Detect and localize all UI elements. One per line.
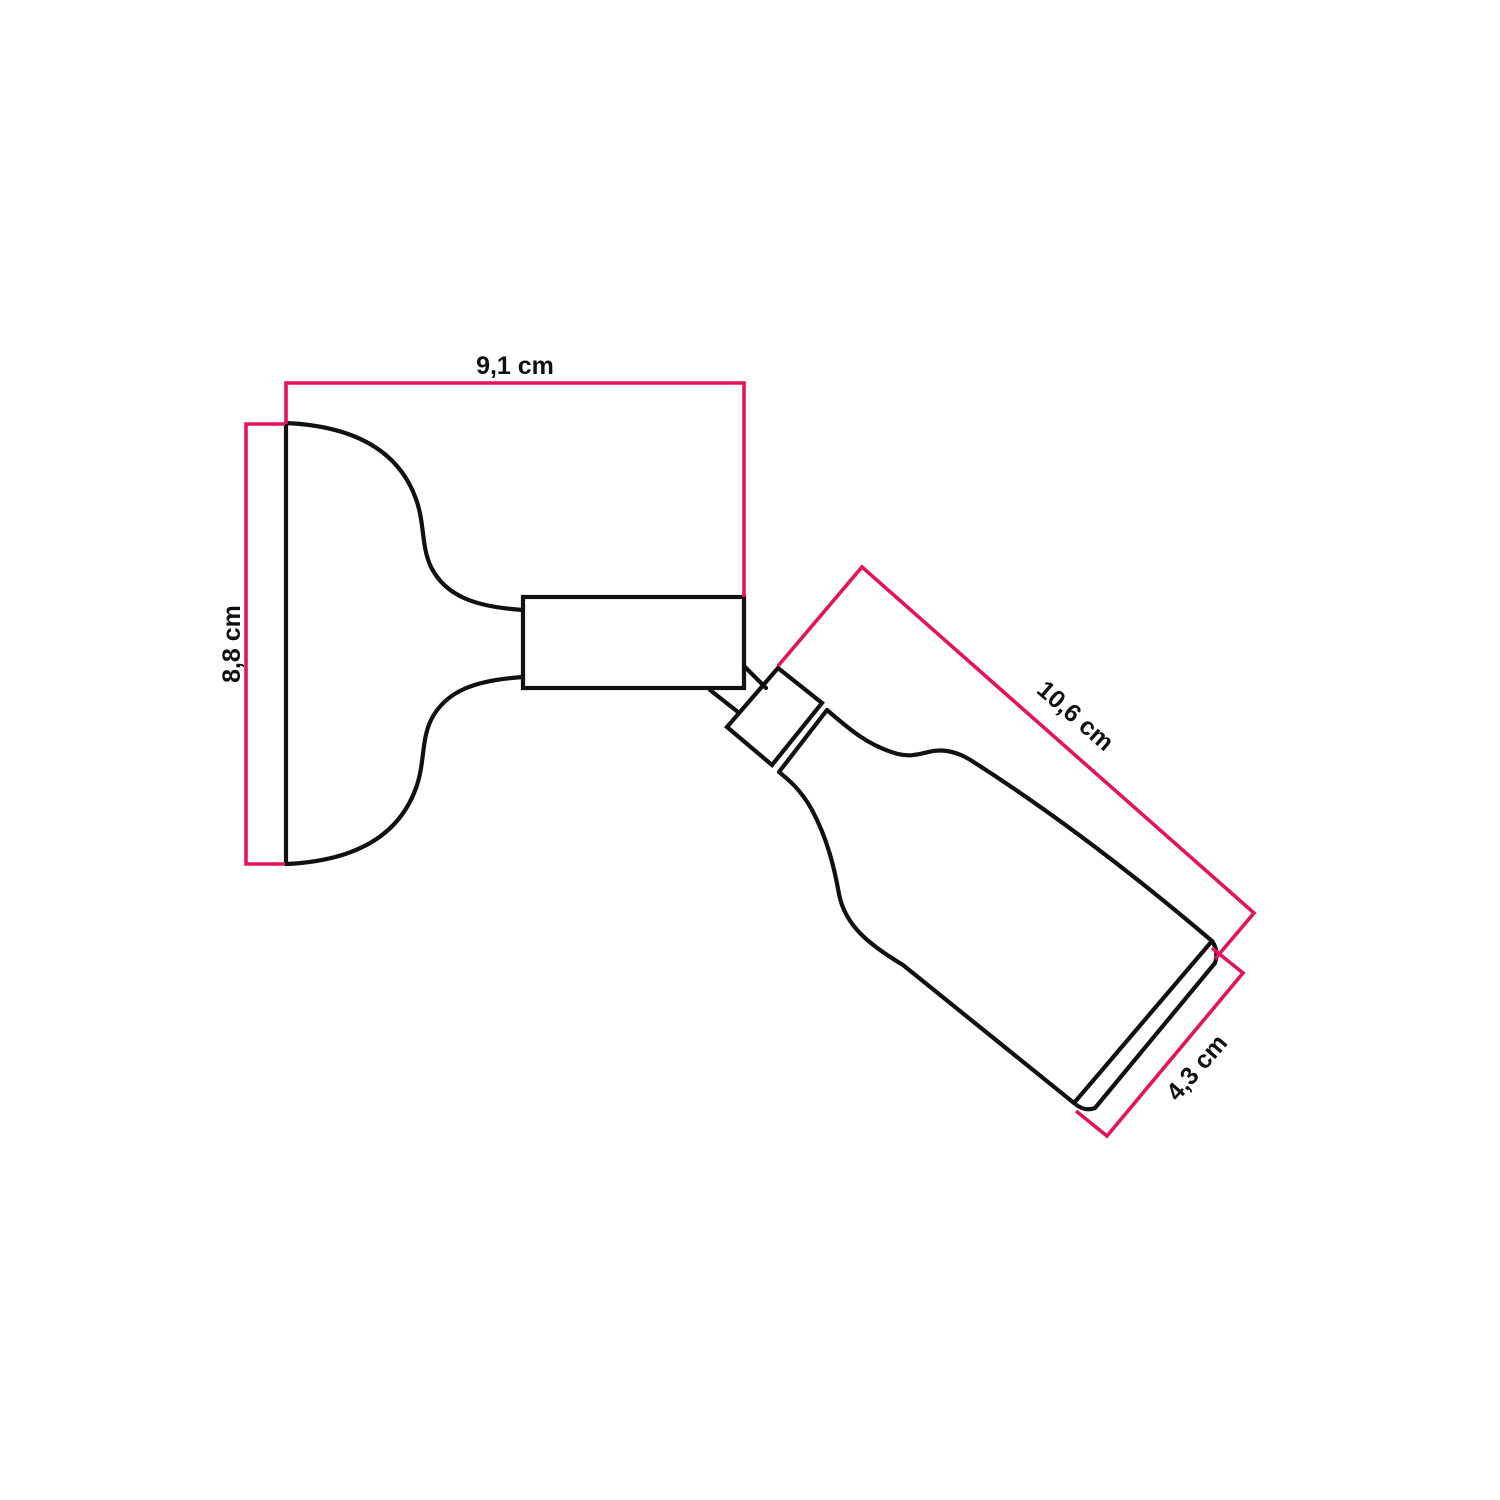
lamp-outline <box>286 423 1216 1109</box>
dimension-lines <box>246 383 1254 1136</box>
dimension-label-holder-length: 10,6 cm <box>1031 675 1119 756</box>
dimension-diagram: 9,1 cm 8,8 cm 10,6 cm 4,3 cm <box>0 0 1500 1500</box>
swivel-joint <box>727 668 822 765</box>
dimension-labels: 9,1 cm 8,8 cm 10,6 cm 4,3 cm <box>218 352 1233 1106</box>
joint-rim-line <box>779 710 827 772</box>
joint-stem-lower-line <box>710 690 738 712</box>
body-cylinder <box>523 597 744 688</box>
dimension-label-holder-diameter: 4,3 cm <box>1161 1029 1233 1106</box>
lamp-holder-shade <box>779 710 1216 1109</box>
dimension-line-overall-depth <box>286 383 744 597</box>
wall-mount-cup <box>286 423 523 864</box>
dimension-label-overall-depth: 9,1 cm <box>476 352 554 380</box>
dimension-line-base-height <box>246 424 285 864</box>
dimension-diagram-canvas: 9,1 cm 8,8 cm 10,6 cm 4,3 cm <box>0 0 1500 1500</box>
dimension-label-base-height: 8,8 cm <box>218 605 246 683</box>
dimension-line-holder-length <box>778 567 1254 959</box>
